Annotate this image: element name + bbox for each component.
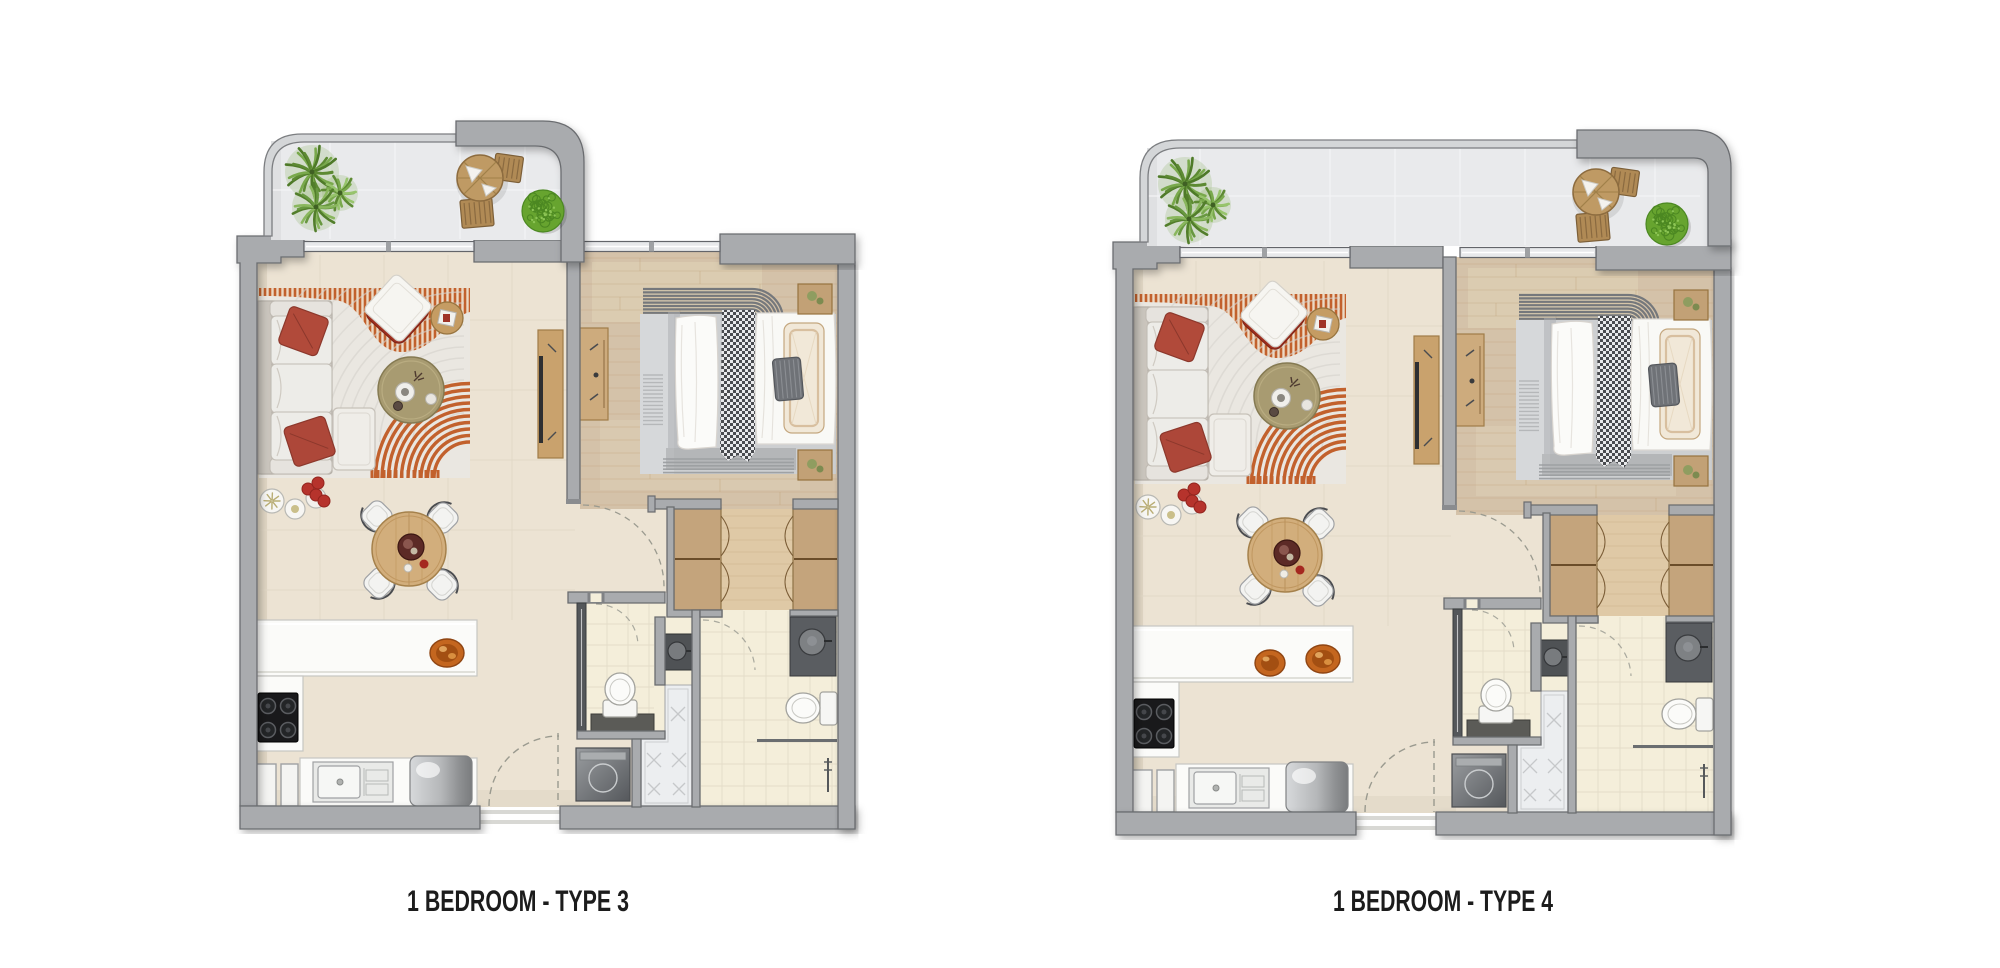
svg-text:1 BEDROOM - TYPE 3: 1 BEDROOM - TYPE 3	[407, 885, 629, 918]
svg-text:1 BEDROOM - TYPE 4: 1 BEDROOM - TYPE 4	[1333, 885, 1553, 918]
